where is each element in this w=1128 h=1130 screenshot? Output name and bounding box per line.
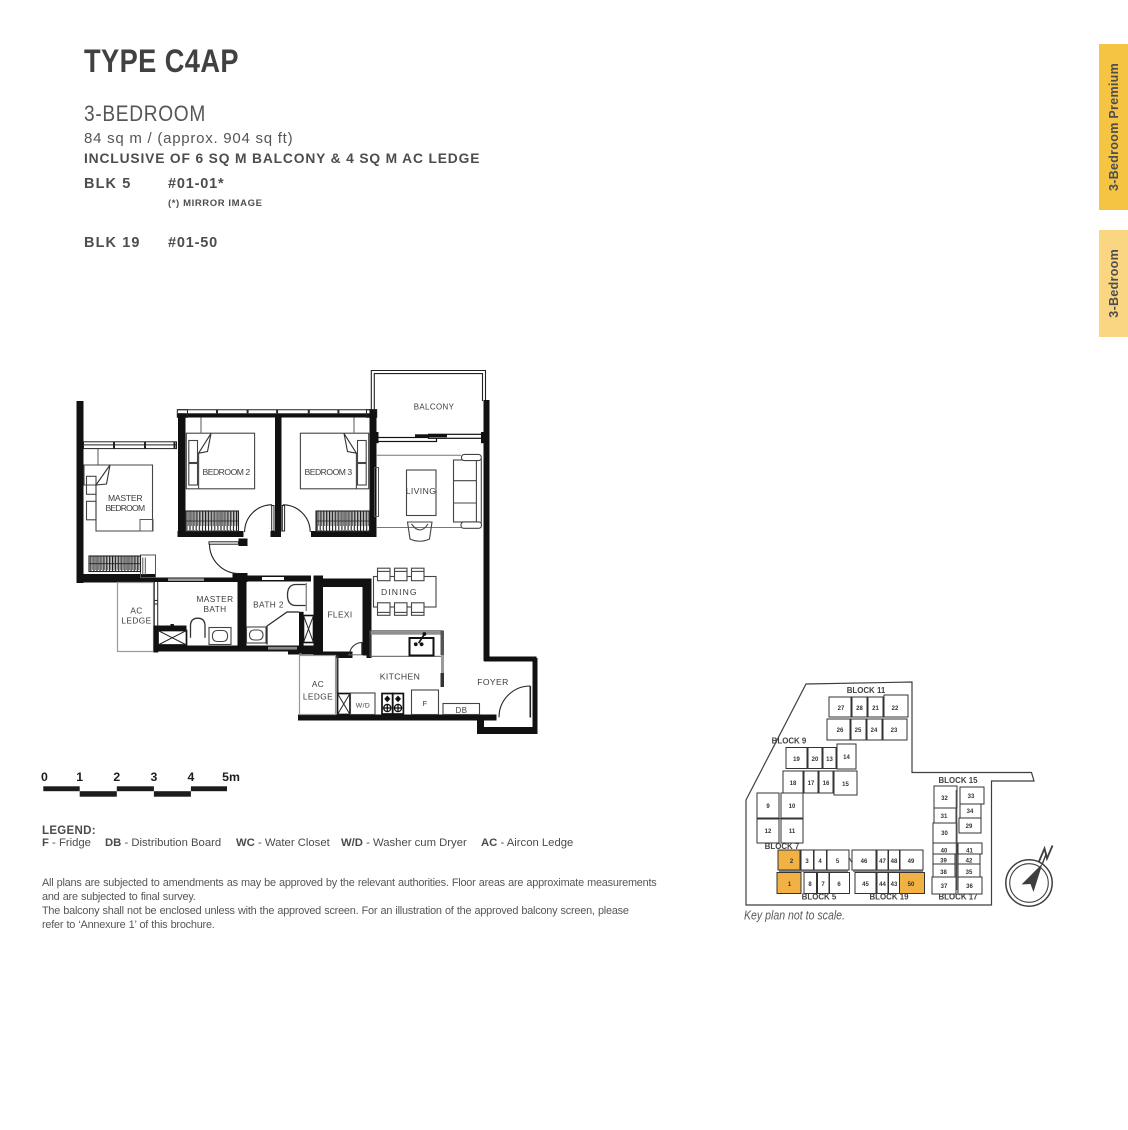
svg-text:42: 42 [966,859,973,865]
svg-text:48: 48 [891,859,898,865]
svg-text:BLOCK 9: BLOCK 9 [772,737,807,746]
svg-text:BEDROOM 2: BEDROOM 2 [203,467,251,477]
svg-text:49: 49 [908,859,915,865]
svg-text:LEDGE: LEDGE [121,616,151,626]
svg-text:FLEXI: FLEXI [327,610,352,620]
svg-text:33: 33 [968,794,975,800]
svg-text:44: 44 [879,882,886,888]
svg-text:4: 4 [187,770,194,784]
svg-text:30: 30 [941,831,948,837]
svg-text:13: 13 [826,757,833,763]
svg-text:BLOCK 5: BLOCK 5 [802,893,837,902]
svg-text:2: 2 [113,770,120,784]
svg-text:41: 41 [966,849,973,855]
svg-text:DB: DB [456,706,468,715]
svg-text:BLOCK 17: BLOCK 17 [938,893,978,902]
svg-text:36: 36 [966,884,973,890]
svg-text:4: 4 [818,859,822,865]
svg-text:3: 3 [805,859,809,865]
svg-text:40: 40 [941,849,948,855]
svg-text:BALCONY: BALCONY [414,403,455,412]
svg-text:37: 37 [941,884,948,890]
svg-text:32: 32 [941,796,948,802]
svg-text:9: 9 [766,804,770,810]
svg-text:17: 17 [808,781,815,787]
svg-text:38: 38 [940,870,947,876]
svg-text:F: F [422,699,427,708]
svg-text:35: 35 [966,870,973,876]
svg-text:BATH: BATH [203,604,226,614]
svg-text:Key plan not to scale.: Key plan not to scale. [744,909,845,923]
svg-text:10: 10 [789,804,796,810]
svg-text:BEDROOM 3: BEDROOM 3 [305,467,353,477]
svg-text:43: 43 [891,882,898,888]
svg-text:39: 39 [940,859,947,865]
svg-text:18: 18 [790,781,797,787]
svg-text:21: 21 [872,706,879,712]
svg-text:23: 23 [891,728,898,734]
svg-text:DINING: DINING [381,587,417,597]
svg-text:47: 47 [879,859,886,865]
svg-text:3: 3 [150,770,157,784]
svg-text:BLOCK 7: BLOCK 7 [765,842,800,851]
svg-text:AC: AC [130,606,142,616]
svg-text:34: 34 [967,809,974,815]
svg-text:FOYER: FOYER [477,677,509,687]
svg-text:19: 19 [793,757,800,763]
svg-text:46: 46 [861,859,868,865]
svg-text:0: 0 [41,770,48,784]
svg-text:8: 8 [808,882,812,888]
svg-text:MASTER: MASTER [108,493,143,503]
svg-text:LEDGE: LEDGE [303,692,333,702]
svg-text:5m: 5m [222,770,240,784]
svg-text:11: 11 [789,829,796,835]
svg-text:20: 20 [812,757,819,763]
svg-text:5: 5 [836,859,840,865]
svg-text:25: 25 [855,728,862,734]
svg-text:28: 28 [856,706,863,712]
svg-text:6: 6 [837,882,841,888]
svg-text:16: 16 [823,781,830,787]
svg-text:BLOCK 19: BLOCK 19 [869,893,909,902]
svg-text:14: 14 [843,755,850,761]
svg-text:KITCHEN: KITCHEN [380,672,421,682]
svg-text:W/D: W/D [356,703,370,710]
svg-text:LIVING: LIVING [406,486,437,496]
svg-text:15: 15 [842,782,849,788]
svg-text:MASTER: MASTER [197,594,234,604]
svg-text:29: 29 [966,824,973,830]
svg-text:27: 27 [838,706,845,712]
svg-text:24: 24 [871,728,878,734]
svg-text:1: 1 [76,770,83,784]
svg-text:BLOCK 11: BLOCK 11 [847,686,886,695]
svg-text:26: 26 [837,728,844,734]
svg-text:50: 50 [908,882,915,888]
svg-text:22: 22 [892,706,899,712]
svg-text:7: 7 [821,882,825,888]
svg-text:31: 31 [941,814,948,820]
svg-text:BLOCK 15: BLOCK 15 [938,776,978,785]
svg-text:45: 45 [862,882,869,888]
svg-text:BATH 2: BATH 2 [253,600,284,610]
svg-text:AC: AC [312,679,324,689]
svg-text:12: 12 [765,829,772,835]
svg-text:BEDROOM: BEDROOM [106,503,146,513]
